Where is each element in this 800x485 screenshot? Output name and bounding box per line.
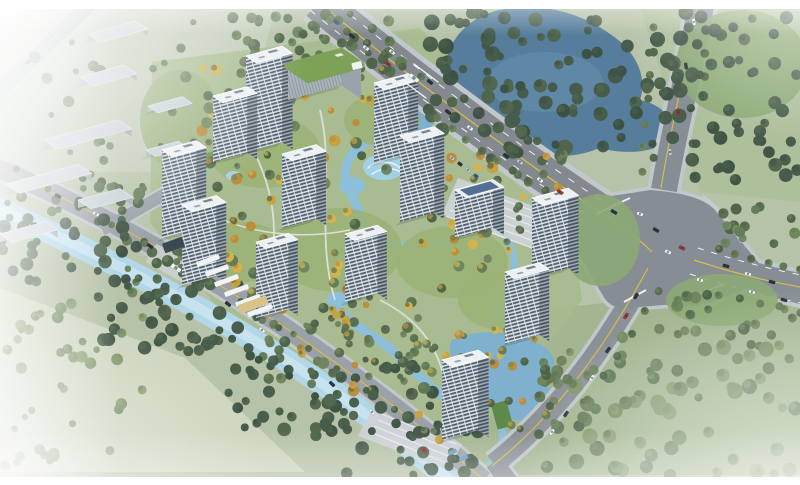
rendering-canvas [0, 0, 800, 485]
haze-bottom-strip [0, 430, 800, 477]
frame-top [0, 0, 800, 9]
residential-tower-9 [395, 127, 444, 226]
pondlet-1 [339, 177, 365, 195]
frame-bottom [0, 477, 800, 485]
facade-side [568, 188, 579, 275]
haze-top-strip [0, 9, 800, 35]
aerial-masterplan-rendering [0, 0, 800, 485]
facade-side [377, 225, 387, 299]
car-windshield [669, 151, 672, 153]
facade-side [434, 127, 444, 220]
facade-side [478, 350, 489, 437]
residential-tower-8 [340, 225, 387, 306]
residential-tower-12 [437, 350, 489, 444]
